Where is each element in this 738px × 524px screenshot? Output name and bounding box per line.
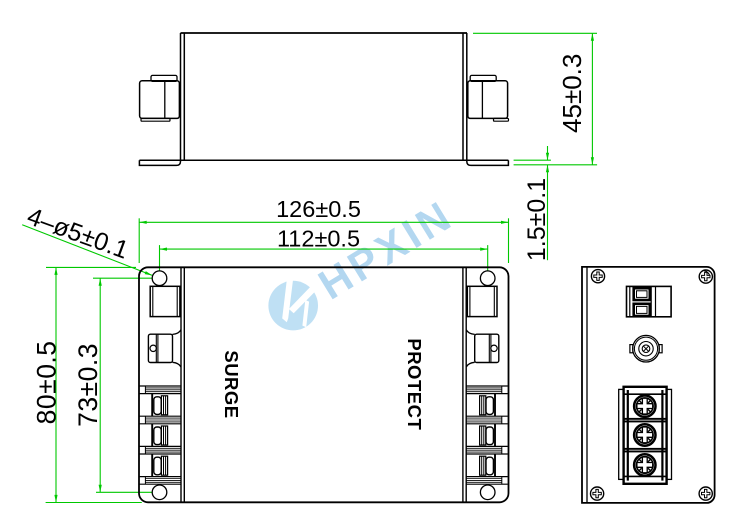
svg-text:73±0.3: 73±0.3	[73, 343, 103, 427]
svg-text:112±0.5: 112±0.5	[277, 225, 360, 251]
svg-text:PROTECT: PROTECT	[404, 338, 425, 430]
svg-text:1.5±0.1: 1.5±0.1	[523, 178, 551, 261]
svg-text:80±0.5: 80±0.5	[32, 340, 62, 424]
svg-text:SURGE: SURGE	[221, 350, 242, 418]
svg-text:126±0.5: 126±0.5	[276, 196, 361, 222]
svg-text:45±0.3: 45±0.3	[557, 54, 587, 133]
svg-text:4–ø5±0.1: 4–ø5±0.1	[23, 202, 132, 264]
